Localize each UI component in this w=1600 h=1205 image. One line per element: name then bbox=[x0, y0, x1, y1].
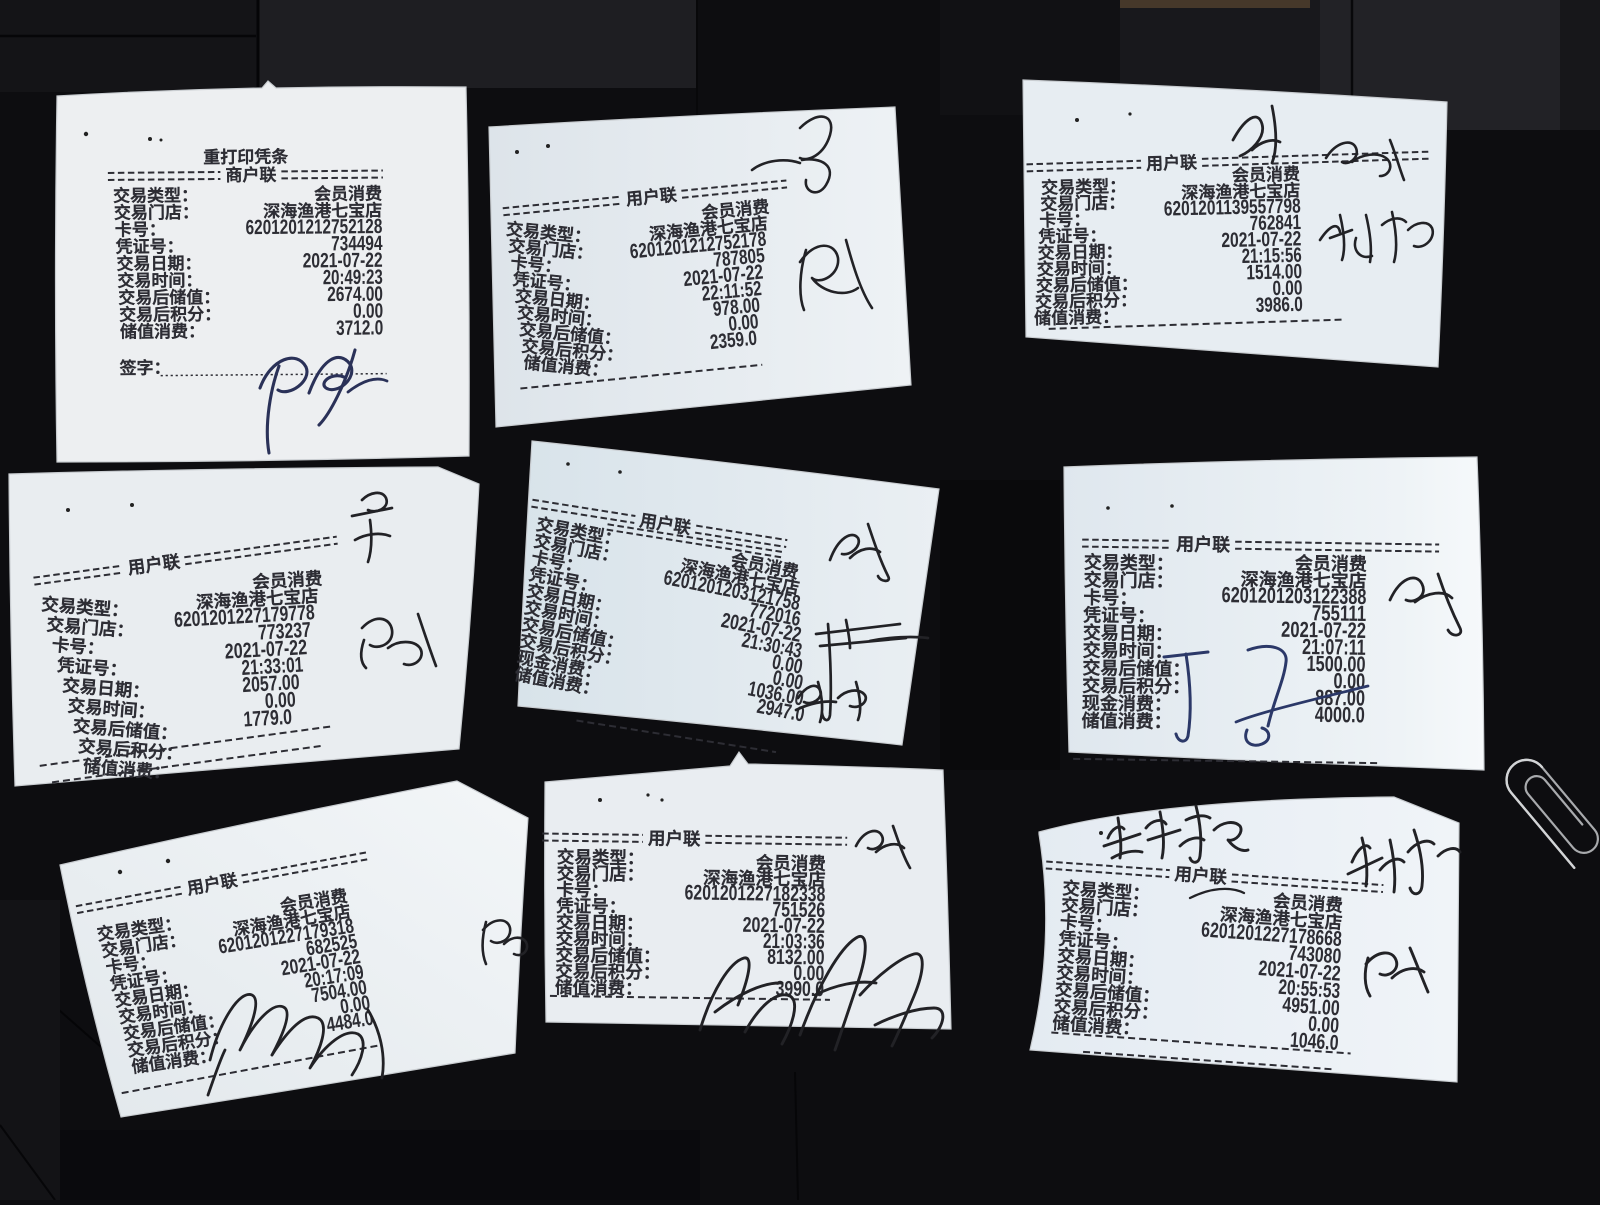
svg-text:3986.0: 3986.0 bbox=[1255, 293, 1303, 317]
svg-text:4000.0: 4000.0 bbox=[1315, 702, 1365, 728]
svg-text:1779.0: 1779.0 bbox=[243, 705, 293, 732]
svg-text:3712.0: 3712.0 bbox=[336, 316, 383, 339]
svg-text:1046.0: 1046.0 bbox=[1289, 1028, 1339, 1055]
svg-text:3990.0: 3990.0 bbox=[775, 976, 824, 1001]
svg-text:2359.0: 2359.0 bbox=[709, 327, 758, 354]
